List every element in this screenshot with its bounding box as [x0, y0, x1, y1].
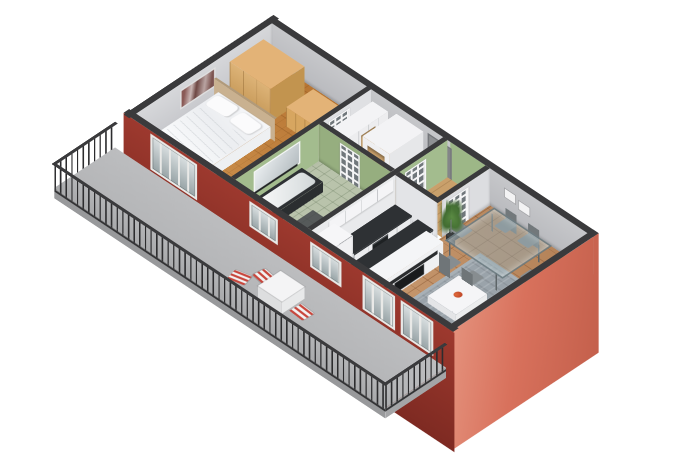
wall-frame-1: [504, 187, 516, 205]
apartment-plan: [125, 53, 599, 368]
floor-plan-render: [0, 0, 698, 457]
wall-frame-2: [518, 200, 530, 218]
